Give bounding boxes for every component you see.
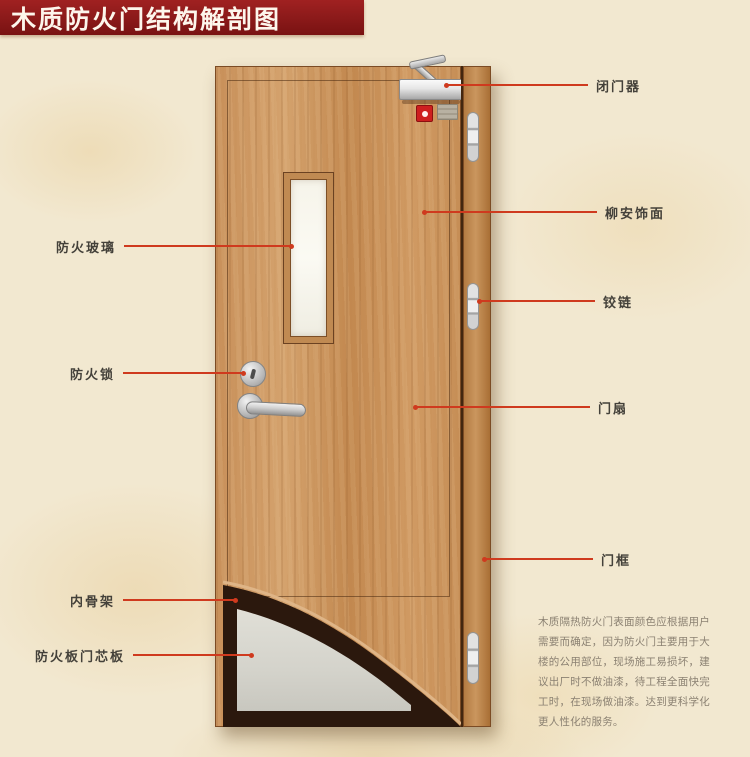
annotation-fire-glass: 防火玻璃	[56, 237, 293, 255]
door-leaf	[215, 66, 461, 727]
annotation-label: 防火板门芯板	[35, 646, 125, 665]
annotation-leader-line	[478, 300, 595, 302]
annotation-label: 闭门器	[596, 76, 641, 95]
annotation-label: 门扇	[598, 398, 628, 417]
annotation-label: 内骨架	[70, 591, 115, 610]
annotation-leader-line	[133, 654, 253, 656]
cutaway-section	[217, 571, 461, 727]
door-frame	[463, 66, 491, 727]
page-title: 木质防火门结构解剖图	[0, 0, 281, 36]
door-closer-arm-bracket	[409, 54, 447, 70]
hinge-bottom	[467, 632, 479, 684]
annotation-leader-line	[124, 245, 293, 247]
annotation-door-frame: 门框	[483, 550, 631, 568]
annotation-leader-line	[123, 599, 237, 601]
annotation-leader-line	[123, 372, 245, 374]
annotation-hinge: 铰链	[478, 292, 633, 310]
annotation-inner-skeleton: 内骨架	[70, 591, 237, 609]
keyhole-icon	[250, 369, 256, 380]
door-panel-groove	[227, 80, 450, 597]
annotation-label: 铰链	[603, 292, 633, 311]
alarm-indicator	[416, 105, 433, 122]
fire-glass-window	[284, 173, 333, 343]
annotation-label: 防火玻璃	[56, 237, 116, 256]
annotation-leader-line	[445, 84, 588, 86]
annotation-door-leaf: 门扇	[414, 398, 628, 416]
description-paragraph: 木质隔热防火门表面颜色应根据用户需要而确定，因为防火门主要用于大楼的公用部位，现…	[538, 612, 710, 732]
annotation-fire-lock: 防火锁	[70, 364, 245, 382]
annotation-leader-line	[414, 406, 590, 408]
vent-plate	[437, 104, 458, 120]
annotation-label: 柳安饰面	[605, 203, 665, 222]
annotation-label: 门框	[601, 550, 631, 569]
annotation-leader-line	[423, 211, 597, 213]
diagram-stage: 木质防火门结构解剖图	[0, 0, 750, 757]
annotation-core-panel: 防火板门芯板	[35, 646, 253, 664]
annotation-lauan-veneer: 柳安饰面	[423, 203, 665, 221]
fire-door-illustration	[215, 66, 491, 727]
annotation-label: 防火锁	[70, 364, 115, 383]
annotation-door-closer: 闭门器	[445, 76, 641, 94]
annotation-leader-line	[483, 558, 593, 560]
title-banner: 木质防火门结构解剖图	[0, 0, 364, 35]
hinge-top	[467, 112, 479, 162]
